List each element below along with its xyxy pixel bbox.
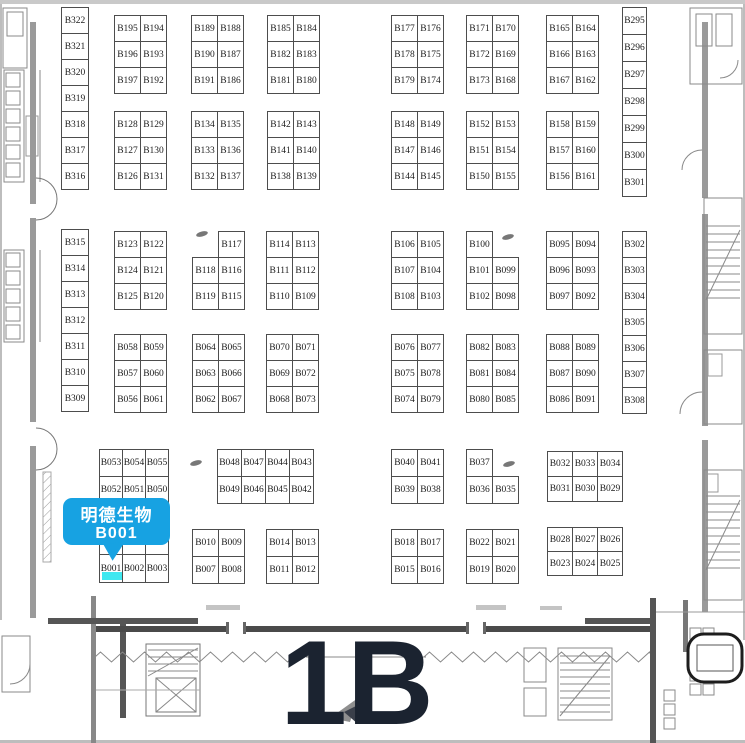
booth-number: B135 xyxy=(220,120,241,130)
booth-b008[interactable]: B008 xyxy=(218,556,245,584)
booth-b180[interactable]: B180 xyxy=(293,67,320,94)
booth-b016[interactable]: B016 xyxy=(417,556,444,584)
booth-number: B040 xyxy=(394,458,415,468)
booth-number: B129 xyxy=(143,120,164,130)
booth-b038[interactable]: B038 xyxy=(417,476,444,504)
booth-b032[interactable]: B032 xyxy=(547,451,573,477)
booth-b163[interactable]: B163 xyxy=(572,41,599,68)
booth-b174[interactable]: B174 xyxy=(417,67,444,94)
booth-b181[interactable]: B181 xyxy=(267,67,294,94)
booth-number: B011 xyxy=(269,565,289,575)
booth-number: B171 xyxy=(469,24,490,34)
booth-b307[interactable]: B307 xyxy=(622,361,647,388)
booth-b028[interactable]: B028 xyxy=(547,527,573,552)
booth-number: B102 xyxy=(469,292,490,302)
booth-number: B307 xyxy=(624,370,645,380)
booth-b062[interactable]: B062 xyxy=(192,386,219,413)
booth-b297[interactable]: B297 xyxy=(622,61,647,89)
booth-b151[interactable]: B151 xyxy=(466,137,493,164)
booth-b302[interactable]: B302 xyxy=(622,231,647,258)
booth-b308[interactable]: B308 xyxy=(622,387,647,414)
booth-b143[interactable]: B143 xyxy=(293,111,320,138)
booth-b042[interactable]: B042 xyxy=(289,476,314,504)
booth-b295[interactable]: B295 xyxy=(622,7,647,35)
booth-number: B197 xyxy=(117,76,138,86)
booth-b044[interactable]: B044 xyxy=(265,449,290,477)
booth-b022[interactable]: B022 xyxy=(466,529,493,557)
booth-b171[interactable]: B171 xyxy=(466,15,493,42)
booth-b159[interactable]: B159 xyxy=(572,111,599,138)
booth-number: B070 xyxy=(269,343,290,353)
booth-number: B013 xyxy=(295,538,316,548)
booth-number: B133 xyxy=(194,146,215,156)
booth-number: B168 xyxy=(495,76,516,86)
booth-b094[interactable]: B094 xyxy=(572,231,599,258)
booth-b126[interactable]: B126 xyxy=(114,163,141,190)
booth-b060[interactable]: B060 xyxy=(140,360,167,387)
booth-number: B078 xyxy=(420,369,441,379)
booth-b075[interactable]: B075 xyxy=(391,360,418,387)
booth-b076[interactable]: B076 xyxy=(391,334,418,361)
booth-b095[interactable]: B095 xyxy=(546,231,573,258)
booth-b026[interactable]: B026 xyxy=(597,527,623,552)
booth-number: B187 xyxy=(220,50,241,60)
booth-b111[interactable]: B111 xyxy=(266,257,293,284)
booth-number: B003 xyxy=(147,564,168,574)
booth-b102[interactable]: B102 xyxy=(466,283,493,310)
booth-number: B027 xyxy=(575,535,596,545)
booth-b069[interactable]: B069 xyxy=(266,360,293,387)
booth-number: B054 xyxy=(124,458,145,468)
booth-b132[interactable]: B132 xyxy=(191,163,218,190)
booth-b019[interactable]: B019 xyxy=(466,556,493,584)
booth-b313[interactable]: B313 xyxy=(61,281,89,308)
booth-b093[interactable]: B093 xyxy=(572,257,599,284)
booth-b142[interactable]: B142 xyxy=(267,111,294,138)
booth-number: B166 xyxy=(549,50,570,60)
booth-b122[interactable]: B122 xyxy=(140,231,167,258)
booth-number: B181 xyxy=(270,76,291,86)
booth-b167[interactable]: B167 xyxy=(546,67,573,94)
blk-b010: B010B009B007B008 xyxy=(193,530,245,584)
booth-b162[interactable]: B162 xyxy=(572,67,599,94)
booth-b191[interactable]: B191 xyxy=(191,67,218,94)
booth-b030[interactable]: B030 xyxy=(572,476,598,502)
booth-b193[interactable]: B193 xyxy=(140,41,167,68)
booth-b059[interactable]: B059 xyxy=(140,334,167,361)
booth-b015[interactable]: B015 xyxy=(391,556,418,584)
blk-b177: B177B176B178B175B179B174 xyxy=(392,16,444,94)
booth-number: B308 xyxy=(624,396,645,406)
booth-b127[interactable]: B127 xyxy=(114,137,141,164)
booth-b322[interactable]: B322 xyxy=(61,7,89,34)
booth-number: B020 xyxy=(495,565,516,575)
booth-number: B156 xyxy=(549,172,570,182)
blk-b088: B088B089B087B090B086B091 xyxy=(547,335,599,413)
blk-b100: B100B101B099B102B098 xyxy=(467,232,519,310)
booth-b121[interactable]: B121 xyxy=(140,257,167,284)
booth-number: B141 xyxy=(270,146,291,156)
booth-b017[interactable]: B017 xyxy=(417,529,444,557)
booth-b296[interactable]: B296 xyxy=(622,34,647,62)
booth-b025[interactable]: B025 xyxy=(597,551,623,576)
booth-b144[interactable]: B144 xyxy=(391,163,418,190)
booth-b043[interactable]: B043 xyxy=(289,449,314,477)
booth-number: B110 xyxy=(269,292,289,302)
booth-number: B046 xyxy=(243,485,264,495)
booth-number: B023 xyxy=(550,559,571,569)
booth-b315[interactable]: B315 xyxy=(61,229,89,256)
booth-b192[interactable]: B192 xyxy=(140,67,167,94)
blk-b128: B128B129B127B130B126B131 xyxy=(115,112,167,190)
booth-number: B094 xyxy=(575,240,596,250)
booth-number: B186 xyxy=(220,76,241,86)
booth-b090[interactable]: B090 xyxy=(572,360,599,387)
booth-b087[interactable]: B087 xyxy=(546,360,573,387)
booth-b074[interactable]: B074 xyxy=(391,386,418,413)
booth-b160[interactable]: B160 xyxy=(572,137,599,164)
booth-number: B010 xyxy=(195,538,216,548)
booth-b134[interactable]: B134 xyxy=(191,111,218,138)
blk-b014: B014B013B011B012 xyxy=(267,530,319,584)
booth-b128[interactable]: B128 xyxy=(114,111,141,138)
booth-b084[interactable]: B084 xyxy=(492,360,519,387)
booth-number: B169 xyxy=(495,50,516,60)
booth-number: B069 xyxy=(269,369,290,379)
booth-b079[interactable]: B079 xyxy=(417,386,444,413)
booth-b304[interactable]: B304 xyxy=(622,283,647,310)
booth-b086[interactable]: B086 xyxy=(546,386,573,413)
booth-b009[interactable]: B009 xyxy=(218,529,245,557)
booth-b089[interactable]: B089 xyxy=(572,334,599,361)
booth-b117[interactable]: B117 xyxy=(218,231,245,258)
booth-b047[interactable]: B047 xyxy=(241,449,266,477)
booth-b154[interactable]: B154 xyxy=(492,137,519,164)
booth-number: B083 xyxy=(495,343,516,353)
booth-b130[interactable]: B130 xyxy=(140,137,167,164)
booth-b190[interactable]: B190 xyxy=(191,41,218,68)
booth-b013[interactable]: B013 xyxy=(292,529,319,557)
booth-number: B079 xyxy=(420,395,441,405)
booth-number: B066 xyxy=(221,369,242,379)
booth-number: B176 xyxy=(420,24,441,34)
booth-b066[interactable]: B066 xyxy=(218,360,245,387)
booth-b020[interactable]: B020 xyxy=(492,556,519,584)
booth-b098[interactable]: B098 xyxy=(492,283,519,310)
booth-b109[interactable]: B109 xyxy=(292,283,319,310)
booth-b309[interactable]: B309 xyxy=(61,385,89,412)
booth-b010[interactable]: B010 xyxy=(192,529,219,557)
booth-b155[interactable]: B155 xyxy=(492,163,519,190)
booth-b055[interactable]: B055 xyxy=(145,449,169,477)
booth-b312[interactable]: B312 xyxy=(61,307,89,334)
booth-b120[interactable]: B120 xyxy=(140,283,167,310)
booth-b056[interactable]: B056 xyxy=(114,386,141,413)
booth-b139[interactable]: B139 xyxy=(293,163,320,190)
booth-b041[interactable]: B041 xyxy=(417,449,444,477)
booth-b168[interactable]: B168 xyxy=(492,67,519,94)
booth-b148[interactable]: B148 xyxy=(391,111,418,138)
booth-b033[interactable]: B033 xyxy=(572,451,598,477)
booth-number: B148 xyxy=(394,120,415,130)
booth-b184[interactable]: B184 xyxy=(293,15,320,42)
booth-b301[interactable]: B301 xyxy=(622,169,647,197)
booth-b172[interactable]: B172 xyxy=(466,41,493,68)
booth-b147[interactable]: B147 xyxy=(391,137,418,164)
booth-b133[interactable]: B133 xyxy=(191,137,218,164)
booth-number: B051 xyxy=(124,485,145,495)
booth-b091[interactable]: B091 xyxy=(572,386,599,413)
booth-b185[interactable]: B185 xyxy=(267,15,294,42)
booth-number: B157 xyxy=(549,146,570,156)
booth-b197[interactable]: B197 xyxy=(114,67,141,94)
booth-b003[interactable]: B003 xyxy=(145,554,169,583)
booth-number: B080 xyxy=(469,395,490,405)
booth-b166[interactable]: B166 xyxy=(546,41,573,68)
booth-b061[interactable]: B061 xyxy=(140,386,167,413)
booth-b129[interactable]: B129 xyxy=(140,111,167,138)
booth-b034[interactable]: B034 xyxy=(597,451,623,477)
blk-b134: B134B135B133B136B132B137 xyxy=(192,112,244,190)
booth-b035[interactable]: B035 xyxy=(492,476,519,504)
booth-b140[interactable]: B140 xyxy=(293,137,320,164)
booth-b319[interactable]: B319 xyxy=(61,85,89,112)
booth-number: B195 xyxy=(117,24,138,34)
booth-b115[interactable]: B115 xyxy=(218,283,245,310)
booth-b023[interactable]: B023 xyxy=(547,551,573,576)
booth-b149[interactable]: B149 xyxy=(417,111,444,138)
booth-b183[interactable]: B183 xyxy=(293,41,320,68)
booth-b125[interactable]: B125 xyxy=(114,283,141,310)
booth-b100[interactable]: B100 xyxy=(466,231,493,258)
booth-b138[interactable]: B138 xyxy=(267,163,294,190)
booth-number: B151 xyxy=(469,146,490,156)
booth-b058[interactable]: B058 xyxy=(114,334,141,361)
booth-b054[interactable]: B054 xyxy=(122,449,146,477)
booth-b068[interactable]: B068 xyxy=(266,386,293,413)
booth-b298[interactable]: B298 xyxy=(622,88,647,116)
booth-b321[interactable]: B321 xyxy=(61,33,89,60)
booth-number: B164 xyxy=(575,24,596,34)
booth-number: B007 xyxy=(195,565,216,575)
booth-number: B112 xyxy=(295,266,315,276)
booth-number: B305 xyxy=(624,318,645,328)
booth-number: B124 xyxy=(117,266,138,276)
booth-number: B170 xyxy=(495,24,516,34)
booth-b078[interactable]: B078 xyxy=(417,360,444,387)
booth-b092[interactable]: B092 xyxy=(572,283,599,310)
booth-b045[interactable]: B045 xyxy=(265,476,290,504)
booth-b113[interactable]: B113 xyxy=(292,231,319,258)
booth-b106[interactable]: B106 xyxy=(391,231,418,258)
booth-b105[interactable]: B105 xyxy=(417,231,444,258)
booth-b161[interactable]: B161 xyxy=(572,163,599,190)
booth-b176[interactable]: B176 xyxy=(417,15,444,42)
booth-b070[interactable]: B070 xyxy=(266,334,293,361)
booth-b317[interactable]: B317 xyxy=(61,137,89,164)
booth-b177[interactable]: B177 xyxy=(391,15,418,42)
blk-b032: B032B033B034B031B030B029 xyxy=(548,452,623,502)
booth-b173[interactable]: B173 xyxy=(466,67,493,94)
booth-b108[interactable]: B108 xyxy=(391,283,418,310)
booth-b118[interactable]: B118 xyxy=(192,257,219,284)
booth-b103[interactable]: B103 xyxy=(417,283,444,310)
booth-b036[interactable]: B036 xyxy=(466,476,493,504)
booth-b188[interactable]: B188 xyxy=(217,15,244,42)
booth-number: B316 xyxy=(65,172,86,182)
booth-b072[interactable]: B072 xyxy=(292,360,319,387)
booth-b085[interactable]: B085 xyxy=(492,386,519,413)
booth-b101[interactable]: B101 xyxy=(466,257,493,284)
booth-b012[interactable]: B012 xyxy=(292,556,319,584)
booth-b031[interactable]: B031 xyxy=(547,476,573,502)
booth-b082[interactable]: B082 xyxy=(466,334,493,361)
booth-b014[interactable]: B014 xyxy=(266,529,293,557)
booth-b299[interactable]: B299 xyxy=(622,115,647,143)
booth-b186[interactable]: B186 xyxy=(217,67,244,94)
booth-number: B167 xyxy=(549,76,570,86)
booth-b048[interactable]: B048 xyxy=(217,449,242,477)
booth-b071[interactable]: B071 xyxy=(292,334,319,361)
booth-b157[interactable]: B157 xyxy=(546,137,573,164)
blk-b076: B076B077B075B078B074B079 xyxy=(392,335,444,413)
booth-number: B322 xyxy=(65,16,86,26)
booth-number: B077 xyxy=(420,343,441,353)
booth-callout: 明德生物 B001 xyxy=(63,498,170,545)
booth-b110[interactable]: B110 xyxy=(266,283,293,310)
booth-b164[interactable]: B164 xyxy=(572,15,599,42)
booth-b073[interactable]: B073 xyxy=(292,386,319,413)
booth-b107[interactable]: B107 xyxy=(391,257,418,284)
booth-number: B158 xyxy=(549,120,570,130)
booth-b306[interactable]: B306 xyxy=(622,335,647,362)
booth-b123[interactable]: B123 xyxy=(114,231,141,258)
booth-b310[interactable]: B310 xyxy=(61,359,89,386)
booth-b114[interactable]: B114 xyxy=(266,231,293,258)
booth-b081[interactable]: B081 xyxy=(466,360,493,387)
booth-b314[interactable]: B314 xyxy=(61,255,89,282)
booth-number: B302 xyxy=(624,240,645,250)
booth-b099[interactable]: B099 xyxy=(492,257,519,284)
booth-number: B093 xyxy=(575,266,596,276)
booth-b011[interactable]: B011 xyxy=(266,556,293,584)
booth-b039[interactable]: B039 xyxy=(391,476,418,504)
booth-b124[interactable]: B124 xyxy=(114,257,141,284)
blk-b018: B018B017B015B016 xyxy=(392,530,444,584)
booth-number: B071 xyxy=(295,343,316,353)
booth-b179[interactable]: B179 xyxy=(391,67,418,94)
booth-b311[interactable]: B311 xyxy=(61,333,89,360)
booth-number: B162 xyxy=(575,76,596,86)
booth-b170[interactable]: B170 xyxy=(492,15,519,42)
booth-b067[interactable]: B067 xyxy=(218,386,245,413)
booth-b194[interactable]: B194 xyxy=(140,15,167,42)
booth-b065[interactable]: B065 xyxy=(218,334,245,361)
booth-b007[interactable]: B007 xyxy=(192,556,219,584)
booth-b136[interactable]: B136 xyxy=(217,137,244,164)
booth-b152[interactable]: B152 xyxy=(466,111,493,138)
booth-b320[interactable]: B320 xyxy=(61,59,89,86)
booth-b318[interactable]: B318 xyxy=(61,111,89,138)
booth-number: B131 xyxy=(143,172,164,182)
booth-b064[interactable]: B064 xyxy=(192,334,219,361)
booth-b080[interactable]: B080 xyxy=(466,386,493,413)
booth-b137[interactable]: B137 xyxy=(217,163,244,190)
empty-area xyxy=(492,231,519,258)
booth-number: B053 xyxy=(101,458,122,468)
booth-number: B114 xyxy=(269,240,289,250)
booth-b131[interactable]: B131 xyxy=(140,163,167,190)
booth-b141[interactable]: B141 xyxy=(267,137,294,164)
booth-b077[interactable]: B077 xyxy=(417,334,444,361)
booth-number: B088 xyxy=(549,343,570,353)
booth-b175[interactable]: B175 xyxy=(417,41,444,68)
booth-b116[interactable]: B116 xyxy=(218,257,245,284)
booth-b158[interactable]: B158 xyxy=(546,111,573,138)
booth-b150[interactable]: B150 xyxy=(466,163,493,190)
booth-b053[interactable]: B053 xyxy=(99,449,123,477)
blk-b185: B185B184B182B183B181B180 xyxy=(268,16,320,94)
booth-b165[interactable]: B165 xyxy=(546,15,573,42)
blk-b195: B195B194B196B193B197B192 xyxy=(115,16,167,94)
booth-b195[interactable]: B195 xyxy=(114,15,141,42)
booth-b303[interactable]: B303 xyxy=(622,257,647,284)
booth-b027[interactable]: B027 xyxy=(572,527,598,552)
booth-b049[interactable]: B049 xyxy=(217,476,242,504)
booth-b156[interactable]: B156 xyxy=(546,163,573,190)
booth-b189[interactable]: B189 xyxy=(191,15,218,42)
booth-b146[interactable]: B146 xyxy=(417,137,444,164)
booth-number: B321 xyxy=(65,42,86,52)
booth-b037[interactable]: B037 xyxy=(466,449,493,477)
booth-b153[interactable]: B153 xyxy=(492,111,519,138)
booth-b119[interactable]: B119 xyxy=(192,283,219,310)
booth-b135[interactable]: B135 xyxy=(217,111,244,138)
booth-b316[interactable]: B316 xyxy=(61,163,89,190)
callout-booth-number: B001 xyxy=(63,525,170,543)
booth-b104[interactable]: B104 xyxy=(417,257,444,284)
booth-number: B039 xyxy=(394,485,415,495)
booth-b187[interactable]: B187 xyxy=(217,41,244,68)
booth-b024[interactable]: B024 xyxy=(572,551,598,576)
booth-number: B127 xyxy=(117,146,138,156)
booth-b063[interactable]: B063 xyxy=(192,360,219,387)
booth-b178[interactable]: B178 xyxy=(391,41,418,68)
booth-b021[interactable]: B021 xyxy=(492,529,519,557)
booth-b169[interactable]: B169 xyxy=(492,41,519,68)
booth-number: B192 xyxy=(143,76,164,86)
booth-b097[interactable]: B097 xyxy=(546,283,573,310)
booth-b182[interactable]: B182 xyxy=(267,41,294,68)
booth-b096[interactable]: B096 xyxy=(546,257,573,284)
booth-b018[interactable]: B018 xyxy=(391,529,418,557)
booth-number: B136 xyxy=(220,146,241,156)
booth-b145[interactable]: B145 xyxy=(417,163,444,190)
booth-b040[interactable]: B040 xyxy=(391,449,418,477)
booth-b300[interactable]: B300 xyxy=(622,142,647,170)
booth-b029[interactable]: B029 xyxy=(597,476,623,502)
booth-b305[interactable]: B305 xyxy=(622,309,647,336)
booth-number: B152 xyxy=(469,120,490,130)
booth-b046[interactable]: B046 xyxy=(241,476,266,504)
booth-b088[interactable]: B088 xyxy=(546,334,573,361)
booth-b112[interactable]: B112 xyxy=(292,257,319,284)
blk-b114: B114B113B111B112B110B109 xyxy=(267,232,319,310)
booth-b057[interactable]: B057 xyxy=(114,360,141,387)
booth-b196[interactable]: B196 xyxy=(114,41,141,68)
booth-number: B295 xyxy=(624,16,645,26)
booth-b083[interactable]: B083 xyxy=(492,334,519,361)
